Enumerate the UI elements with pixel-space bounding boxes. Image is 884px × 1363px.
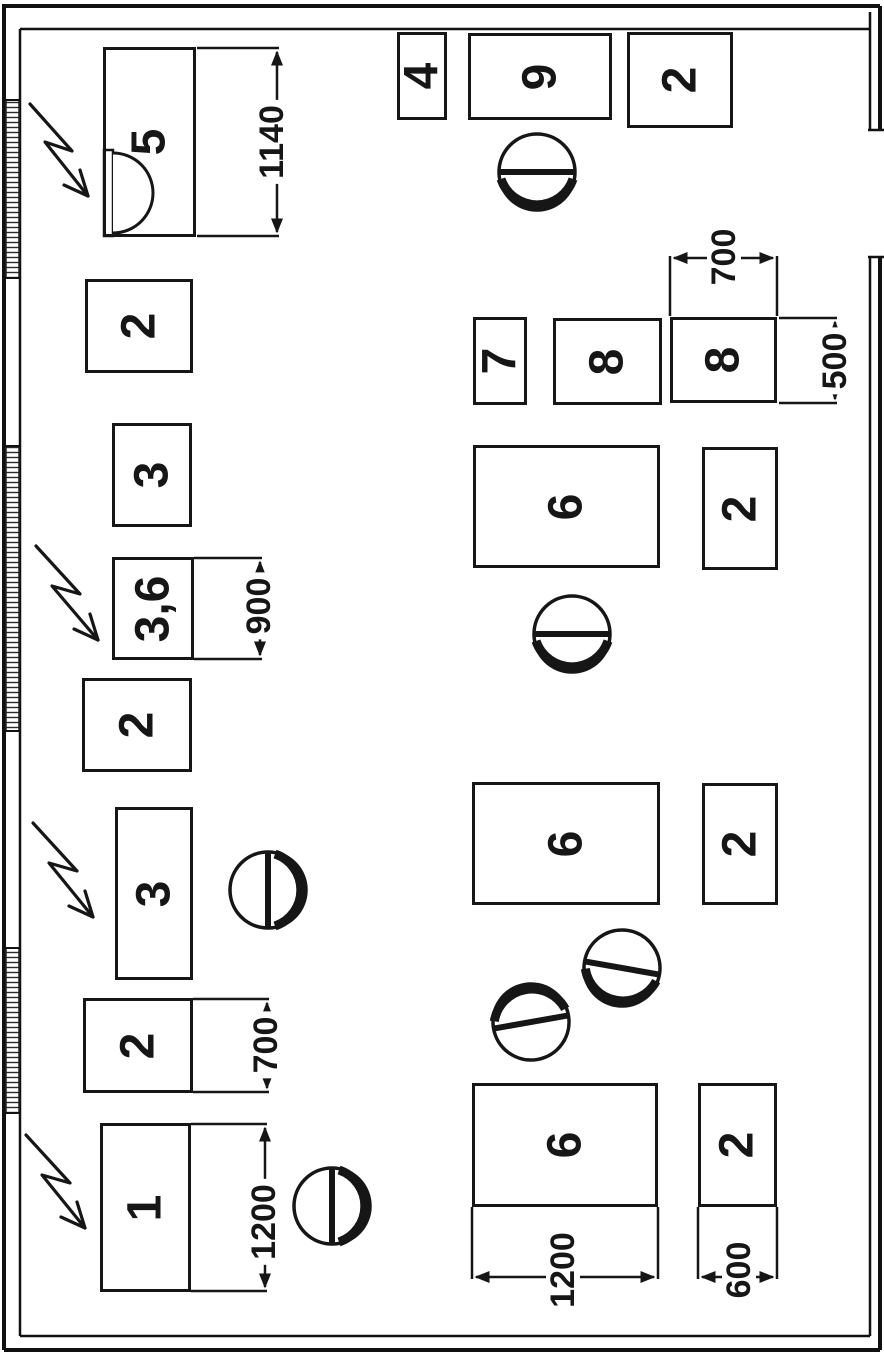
machine-label: 2 — [716, 495, 764, 522]
machine-label: 5 — [125, 129, 173, 156]
lamp-icon — [499, 134, 575, 210]
machine-4: 4 — [397, 32, 447, 120]
lamp-icon — [578, 924, 666, 1012]
machine-8-2: 8 — [670, 317, 777, 403]
machine-3-6: 3,6 — [112, 557, 194, 660]
machine-label: 6 — [542, 830, 590, 857]
machine-label: 2 — [113, 712, 161, 739]
machine-9: 9 — [468, 33, 612, 120]
lamp-icon — [230, 852, 306, 928]
lamp-icon — [487, 978, 575, 1066]
dim-label-1200-left: 1200 — [247, 1179, 281, 1265]
dim-label-700-top: 700 — [707, 224, 741, 291]
machine-label: 2 — [114, 1032, 162, 1059]
machine-label: 3,6 — [129, 575, 177, 642]
window-1 — [4, 100, 21, 278]
window-2 — [4, 446, 21, 731]
dim-label-600: 600 — [722, 1237, 756, 1304]
machine-label: 2 — [656, 67, 704, 94]
power-arrow-icon — [36, 546, 98, 640]
dim-label-900: 900 — [242, 573, 276, 640]
machine-2-7: 2 — [698, 1083, 777, 1207]
machine-5: 5 — [103, 47, 196, 237]
machine-label: 8 — [583, 348, 631, 375]
machine-label: 3 — [128, 462, 176, 489]
lamp-icon — [294, 1168, 370, 1244]
machine-1: 1 — [100, 1123, 191, 1292]
machine-label: 8 — [699, 347, 747, 374]
machine-7: 7 — [473, 317, 527, 405]
machine-2-4: 2 — [627, 32, 733, 128]
machine-2-6: 2 — [702, 783, 778, 905]
floor-plan-sheet: 5 2 3 3,6 2 3 2 1 4 9 2 7 8 8 6 2 6 2 6 … — [0, 0, 884, 1363]
machine-8-1: 8 — [553, 318, 662, 405]
lamp-symbols — [230, 134, 666, 1244]
windows — [4, 100, 21, 1113]
machine-label: 6 — [542, 493, 590, 520]
machine-label: 2 — [115, 313, 163, 340]
machine-3-2: 3 — [115, 807, 193, 980]
machine-label: 4 — [398, 63, 446, 90]
lamp-icon — [534, 596, 610, 672]
window-3 — [4, 948, 21, 1113]
machine-6-2: 6 — [472, 782, 660, 905]
dim-label-1140: 1140 — [255, 100, 289, 184]
machine-label: 2 — [713, 1132, 761, 1159]
dim-label-500: 500 — [818, 328, 852, 395]
machine-label: 6 — [541, 1132, 589, 1159]
machine-6-1: 6 — [473, 445, 660, 568]
machine-label: 1 — [121, 1194, 169, 1221]
power-arrow-icon — [30, 104, 88, 196]
machine-2-1: 2 — [85, 279, 193, 373]
machine-2-3: 2 — [83, 998, 193, 1093]
machine-label: 9 — [516, 63, 564, 90]
power-arrow-icon — [26, 1135, 85, 1228]
machine-2-2: 2 — [82, 678, 192, 772]
machine-3-1: 3 — [112, 423, 192, 527]
dim-label-1200-bottom: 1200 — [546, 1227, 580, 1313]
machine-6-3: 6 — [472, 1083, 658, 1207]
machine-label: 2 — [716, 831, 764, 858]
machine-label: 7 — [476, 348, 524, 375]
machine-2-5: 2 — [702, 447, 778, 570]
dim-label-700-left: 700 — [249, 1012, 283, 1079]
machine-label: 3 — [130, 880, 178, 907]
power-arrow-icon — [33, 823, 93, 917]
